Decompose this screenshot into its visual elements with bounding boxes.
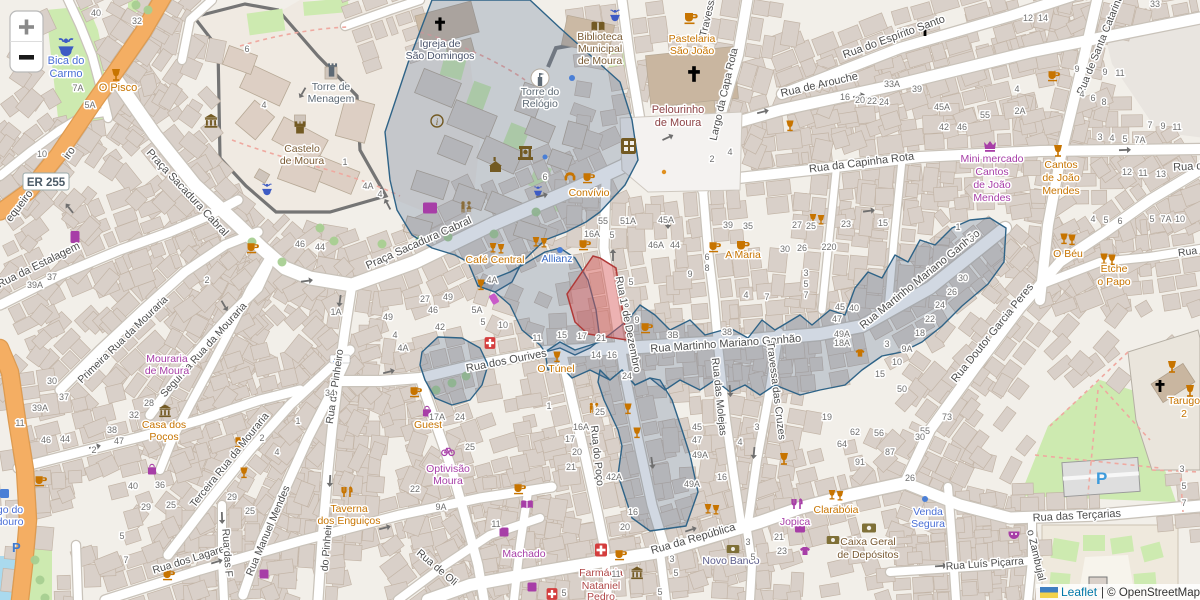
svg-text:Cantos: Cantos [975, 166, 1008, 178]
svg-text:45A: 45A [934, 102, 950, 112]
svg-text:16: 16 [840, 92, 850, 102]
svg-text:4: 4 [727, 147, 732, 157]
svg-text:49A: 49A [684, 479, 700, 489]
svg-text:49: 49 [383, 312, 393, 322]
svg-text:5A: 5A [84, 100, 95, 110]
svg-text:18A: 18A [834, 338, 850, 348]
svg-text:6: 6 [704, 252, 709, 262]
svg-text:Carmo: Carmo [49, 68, 82, 80]
svg-text:10: 10 [37, 149, 47, 159]
svg-text:Jopica: Jopica [780, 516, 811, 528]
svg-text:45: 45 [835, 302, 845, 312]
svg-text:39A: 39A [27, 280, 43, 290]
svg-text:16: 16 [607, 350, 617, 360]
svg-text:4: 4 [737, 437, 742, 447]
svg-text:Machado: Machado [502, 548, 545, 560]
svg-text:4: 4 [1079, 89, 1084, 99]
svg-text:A Maria: A Maria [725, 249, 761, 261]
svg-text:Convívio: Convívio [569, 187, 610, 199]
svg-text:de Moura: de Moura [280, 155, 325, 167]
svg-text:4: 4 [743, 290, 748, 300]
svg-text:Pedro: Pedro [587, 591, 615, 600]
svg-text:de Moura: de Moura [655, 117, 702, 129]
svg-text:4: 4 [1109, 133, 1114, 143]
svg-text:25: 25 [245, 506, 255, 516]
svg-text:24: 24 [455, 412, 465, 422]
svg-text:40: 40 [91, 8, 101, 18]
svg-text:14: 14 [591, 350, 601, 360]
svg-text:10: 10 [892, 357, 902, 367]
svg-text:2: 2 [1181, 408, 1187, 420]
svg-text:3: 3 [669, 554, 674, 564]
svg-text:8: 8 [1101, 97, 1106, 107]
svg-text:Pastelaria: Pastelaria [669, 33, 716, 45]
svg-text:46: 46 [295, 239, 305, 249]
svg-text:1A: 1A [330, 307, 341, 317]
svg-text:7A: 7A [1160, 214, 1171, 224]
svg-text:11: 11 [491, 519, 500, 529]
svg-text:4A: 4A [486, 275, 497, 285]
svg-text:22: 22 [867, 96, 877, 106]
svg-text:30: 30 [915, 432, 925, 442]
svg-text:7: 7 [803, 290, 808, 300]
svg-text:1: 1 [295, 416, 300, 426]
svg-text:16A: 16A [573, 422, 589, 432]
svg-text:O Béu: O Béu [1053, 248, 1083, 260]
svg-text:30: 30 [958, 273, 968, 283]
svg-text:São Domingos: São Domingos [406, 50, 475, 62]
svg-text:28: 28 [144, 398, 154, 408]
svg-text:19: 19 [822, 412, 832, 422]
svg-text:44: 44 [60, 434, 70, 444]
svg-text:55: 55 [598, 216, 608, 226]
svg-text:7: 7 [123, 555, 128, 565]
svg-text:21: 21 [774, 532, 784, 542]
svg-text:46A: 46A [648, 240, 664, 250]
svg-text:46: 46 [428, 305, 438, 315]
svg-text:30: 30 [780, 244, 790, 254]
svg-text:Rua d: Rua d [1173, 160, 1200, 174]
svg-text:14: 14 [1038, 13, 1048, 23]
svg-text:33: 33 [1150, 0, 1160, 9]
svg-text:9: 9 [1160, 121, 1165, 131]
svg-text:87: 87 [885, 447, 895, 457]
svg-text:16A: 16A [584, 229, 600, 239]
svg-text:17: 17 [577, 331, 587, 341]
svg-text:5: 5 [1103, 215, 1108, 225]
svg-text:6: 6 [1090, 93, 1095, 103]
svg-text:7A: 7A [72, 83, 83, 93]
svg-text:| © OpenStreetMap: | © OpenStreetMap [1101, 587, 1200, 599]
svg-text:22: 22 [925, 314, 935, 324]
svg-text:6: 6 [1117, 216, 1122, 226]
svg-text:18: 18 [915, 328, 925, 338]
svg-text:o Papo: o Papo [1097, 276, 1130, 288]
svg-text:9: 9 [634, 315, 639, 325]
svg-text:11: 11 [1138, 168, 1147, 178]
svg-text:11: 11 [611, 569, 620, 579]
svg-text:Mendes: Mendes [973, 192, 1010, 204]
svg-text:4: 4 [261, 100, 266, 110]
svg-text:26: 26 [797, 243, 807, 253]
svg-text:38: 38 [722, 327, 732, 337]
svg-text:21: 21 [566, 462, 576, 472]
svg-text:ER 255: ER 255 [27, 177, 66, 189]
svg-text:Pelourinho: Pelourinho [652, 104, 705, 116]
svg-text:Mendes: Mendes [1042, 185, 1079, 197]
svg-text:17A: 17A [429, 412, 445, 422]
svg-text:Torre de: Torre de [312, 81, 351, 93]
svg-text:Optivisão: Optivisão [426, 463, 470, 475]
svg-text:5: 5 [1122, 134, 1127, 144]
svg-text:30: 30 [47, 376, 57, 386]
svg-text:32: 32 [132, 16, 142, 26]
svg-text:6: 6 [542, 172, 547, 182]
svg-text:37: 37 [47, 272, 57, 282]
svg-text:45A: 45A [658, 215, 674, 225]
svg-text:Venda: Venda [913, 506, 943, 518]
svg-text:2: 2 [91, 445, 96, 455]
svg-text:20: 20 [572, 447, 582, 457]
svg-text:29: 29 [227, 492, 237, 502]
svg-text:46: 46 [41, 435, 51, 445]
svg-text:3: 3 [803, 268, 808, 278]
svg-text:8: 8 [704, 263, 709, 273]
svg-text:Igreja de: Igreja de [420, 38, 461, 50]
svg-text:5: 5 [609, 230, 614, 240]
svg-text:Poços: Poços [149, 431, 178, 443]
svg-text:go do: go do [0, 504, 23, 516]
svg-text:39A: 39A [32, 403, 48, 413]
svg-text:56: 56 [874, 428, 884, 438]
svg-text:44: 44 [315, 242, 325, 252]
svg-text:33A: 33A [884, 79, 900, 89]
svg-text:douro: douro [0, 516, 24, 528]
svg-text:13: 13 [1156, 169, 1166, 179]
svg-text:5: 5 [480, 317, 485, 327]
svg-text:12: 12 [1122, 167, 1132, 177]
svg-text:9: 9 [687, 269, 692, 279]
svg-text:7A: 7A [1134, 135, 1145, 145]
svg-text:47: 47 [114, 436, 124, 446]
svg-text:32: 32 [129, 410, 139, 420]
svg-text:9A: 9A [435, 502, 446, 512]
svg-text:29: 29 [141, 502, 151, 512]
svg-text:49A: 49A [834, 329, 850, 339]
svg-text:5: 5 [1149, 214, 1154, 224]
svg-text:2: 2 [709, 154, 714, 164]
svg-text:7: 7 [1147, 120, 1152, 130]
svg-text:47: 47 [692, 435, 702, 445]
svg-text:Caixa Geral: Caixa Geral [840, 536, 895, 548]
svg-text:17: 17 [565, 434, 575, 444]
svg-text:44: 44 [670, 240, 680, 250]
svg-text:25: 25 [166, 500, 176, 510]
svg-text:5: 5 [561, 588, 566, 598]
svg-text:9: 9 [1102, 67, 1107, 77]
svg-text:42: 42 [939, 122, 949, 132]
svg-text:São João: São João [670, 45, 715, 57]
svg-text:11: 11 [1115, 68, 1124, 78]
svg-text:10: 10 [1175, 214, 1185, 224]
svg-text:49: 49 [443, 292, 453, 302]
svg-text:4A: 4A [362, 181, 373, 191]
svg-text:2: 2 [204, 275, 209, 285]
svg-text:35: 35 [743, 221, 753, 231]
svg-text:42A: 42A [606, 472, 622, 482]
svg-text:26: 26 [947, 287, 957, 297]
svg-text:3: 3 [1179, 464, 1184, 474]
svg-text:15: 15 [875, 369, 885, 379]
svg-text:P: P [1096, 469, 1107, 488]
svg-text:25: 25 [465, 442, 475, 452]
svg-text:11: 11 [1172, 122, 1181, 132]
svg-text:64: 64 [837, 439, 847, 449]
svg-text:Tarugo: Tarugo [1168, 395, 1200, 407]
svg-text:O Pisco: O Pisco [99, 82, 138, 94]
svg-text:Etche: Etche [1101, 263, 1128, 275]
svg-text:36: 36 [155, 480, 165, 490]
svg-text:Café Central: Café Central [466, 254, 525, 266]
svg-text:15: 15 [557, 330, 567, 340]
svg-text:O Túnel: O Túnel [537, 363, 574, 375]
svg-text:Torre do: Torre do [521, 86, 560, 98]
svg-text:5: 5 [1181, 481, 1186, 491]
svg-text:de João: de João [1042, 172, 1080, 184]
svg-text:4: 4 [377, 189, 382, 199]
svg-text:42: 42 [435, 322, 445, 332]
svg-text:9: 9 [1074, 64, 1079, 74]
svg-text:62: 62 [850, 427, 860, 437]
svg-text:5: 5 [119, 531, 124, 541]
svg-text:9A: 9A [901, 344, 912, 354]
svg-text:16: 16 [717, 472, 727, 482]
svg-text:Moura: Moura [433, 475, 463, 487]
svg-text:1: 1 [342, 157, 347, 167]
svg-text:de Moura: de Moura [145, 365, 190, 377]
svg-text:15: 15 [878, 218, 888, 228]
svg-text:Municipal: Municipal [578, 43, 622, 55]
svg-text:26: 26 [905, 473, 915, 483]
svg-text:Allianz: Allianz [542, 253, 573, 265]
svg-text:24: 24 [622, 371, 632, 381]
svg-text:25: 25 [806, 221, 816, 231]
svg-text:5: 5 [657, 587, 662, 597]
svg-text:4A: 4A [397, 343, 408, 353]
svg-text:4: 4 [1090, 214, 1095, 224]
svg-text:Mini mercado: Mini mercado [960, 153, 1023, 165]
svg-text:2A: 2A [1014, 106, 1025, 116]
svg-text:23: 23 [841, 219, 851, 229]
svg-text:24: 24 [935, 300, 945, 310]
svg-text:38: 38 [107, 425, 117, 435]
svg-text:5: 5 [628, 277, 633, 287]
svg-text:40: 40 [849, 303, 859, 313]
svg-text:Leaflet: Leaflet [1061, 585, 1098, 599]
svg-text:46: 46 [957, 122, 967, 132]
svg-text:7: 7 [1181, 498, 1186, 508]
svg-text:45: 45 [692, 422, 702, 432]
svg-text:3: 3 [745, 537, 750, 547]
svg-text:20: 20 [855, 95, 865, 105]
svg-text:Bica do: Bica do [48, 55, 85, 67]
svg-text:Cantos: Cantos [1044, 159, 1077, 171]
svg-text:6: 6 [244, 44, 249, 54]
svg-text:Mouraria: Mouraria [146, 353, 188, 365]
svg-text:5: 5 [673, 568, 678, 578]
svg-text:5A: 5A [471, 305, 482, 315]
svg-text:4: 4 [1014, 84, 1019, 94]
svg-text:3: 3 [969, 234, 974, 244]
svg-text:47: 47 [832, 314, 842, 324]
svg-text:3B: 3B [667, 330, 678, 340]
svg-text:51A: 51A [620, 216, 636, 226]
svg-text:37: 37 [59, 392, 69, 402]
svg-text:50: 50 [897, 384, 907, 394]
svg-text:Castelo: Castelo [284, 143, 320, 155]
svg-text:22: 22 [410, 484, 420, 494]
svg-text:20: 20 [620, 522, 630, 532]
svg-text:3: 3 [754, 422, 759, 432]
svg-text:40: 40 [128, 481, 138, 491]
svg-text:dos Enguiços: dos Enguiços [317, 515, 380, 527]
svg-text:4: 4 [392, 330, 397, 340]
svg-text:Menagem: Menagem [308, 93, 355, 105]
svg-text:55: 55 [980, 110, 990, 120]
svg-text:Segura: Segura [911, 518, 945, 530]
svg-text:3: 3 [1097, 132, 1102, 142]
svg-text:de Moura: de Moura [578, 55, 623, 67]
svg-text:Biblioteca: Biblioteca [577, 31, 623, 43]
svg-text:16: 16 [628, 507, 638, 517]
svg-text:Relógio: Relógio [522, 98, 558, 110]
svg-text:23: 23 [777, 546, 787, 556]
svg-text:Clarabóia: Clarabóia [814, 504, 859, 516]
svg-text:5: 5 [750, 552, 755, 562]
svg-text:39: 39 [723, 220, 733, 230]
svg-text:27: 27 [420, 294, 430, 304]
svg-text:24: 24 [879, 97, 889, 107]
svg-text:7: 7 [764, 292, 769, 302]
svg-text:11: 11 [15, 418, 24, 428]
svg-text:de Depósitos: de Depósitos [837, 549, 898, 561]
svg-text:25: 25 [595, 407, 605, 417]
svg-text:220: 220 [821, 242, 836, 252]
svg-text:Casa dos: Casa dos [142, 419, 186, 431]
svg-text:Taverna: Taverna [330, 503, 368, 515]
svg-text:1: 1 [955, 222, 960, 232]
svg-text:34: 34 [325, 388, 335, 398]
svg-text:12: 12 [1023, 13, 1033, 23]
svg-text:39: 39 [912, 84, 922, 94]
svg-text:P: P [12, 540, 21, 555]
svg-text:21: 21 [596, 333, 606, 343]
svg-text:10: 10 [498, 320, 508, 330]
svg-text:73: 73 [942, 412, 952, 422]
svg-text:de João: de João [973, 179, 1011, 191]
svg-text:3: 3 [884, 339, 889, 349]
svg-text:27: 27 [792, 220, 802, 230]
svg-text:2: 2 [259, 433, 264, 443]
svg-text:5: 5 [803, 279, 808, 289]
svg-text:49A: 49A [692, 450, 708, 460]
svg-text:11: 11 [532, 333, 541, 343]
svg-text:4: 4 [274, 447, 279, 457]
svg-text:1: 1 [546, 401, 551, 411]
svg-text:91: 91 [855, 457, 865, 467]
